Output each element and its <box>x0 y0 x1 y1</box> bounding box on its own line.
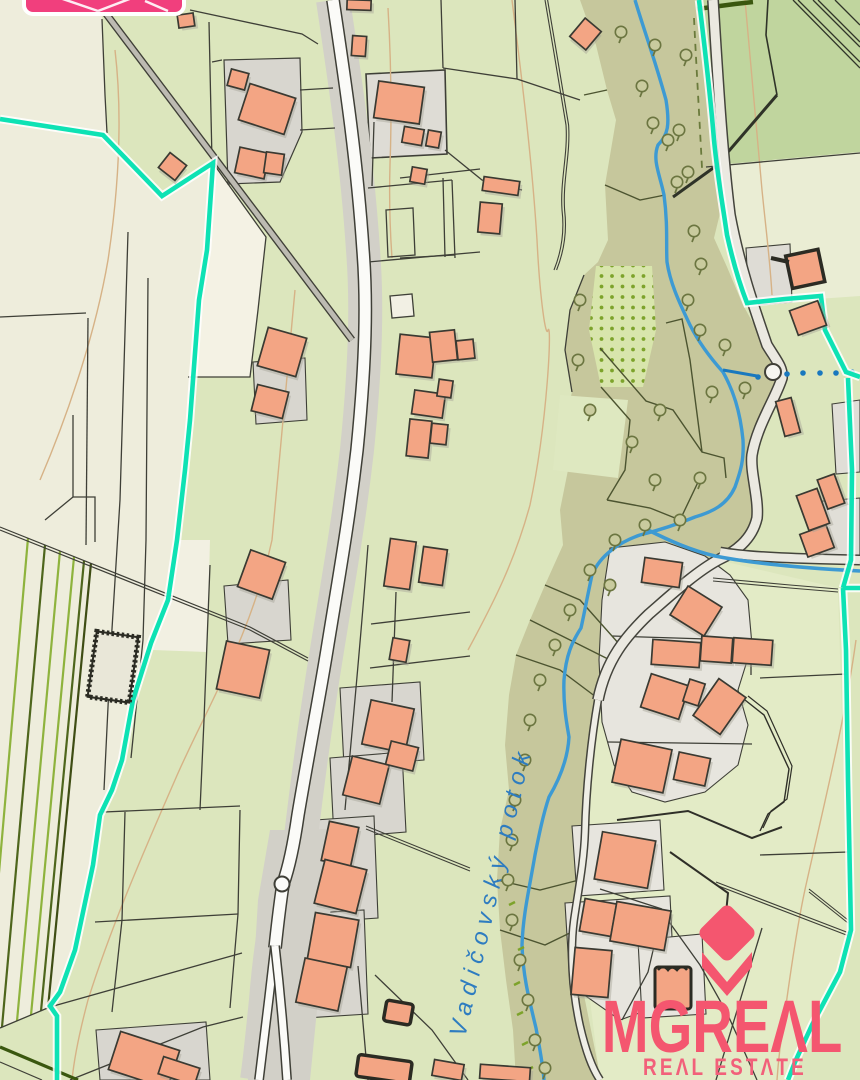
svg-text:REΛL ESTΛTE: REΛL ESTΛTE <box>643 1053 807 1080</box>
